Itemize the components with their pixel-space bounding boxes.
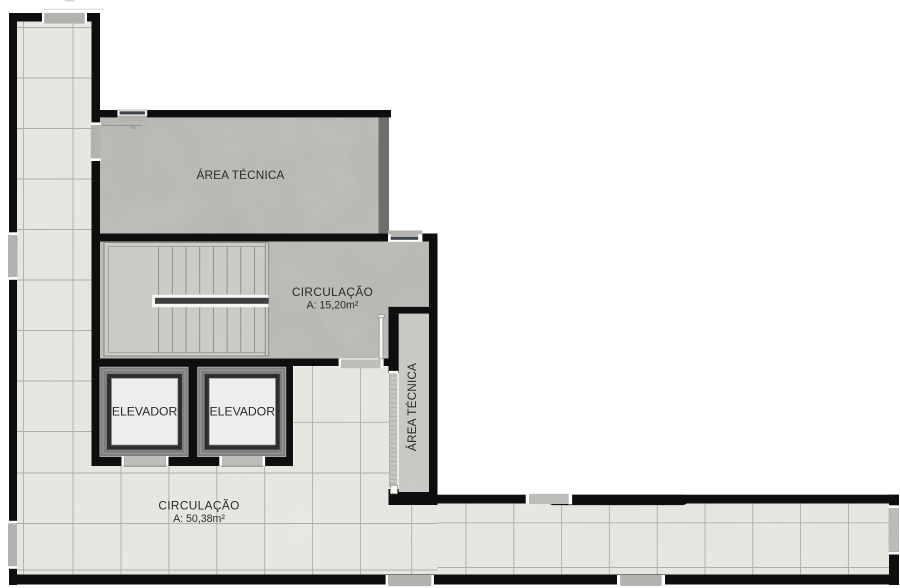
svg-text:A: 15,20m²: A: 15,20m² bbox=[307, 300, 359, 312]
svg-text:ÁREA TÉCNICA: ÁREA TÉCNICA bbox=[196, 168, 284, 182]
svg-text:ELEVADOR: ELEVADOR bbox=[210, 405, 276, 419]
svg-text:A: 50,38m²: A: 50,38m² bbox=[173, 513, 225, 525]
svg-text:ÁREA TÉCNICA: ÁREA TÉCNICA bbox=[405, 363, 419, 451]
svg-text:CIRCULAÇÃO: CIRCULAÇÃO bbox=[158, 499, 239, 513]
svg-text:CIRCULAÇÃO: CIRCULAÇÃO bbox=[292, 285, 373, 299]
svg-text:ELEVADOR: ELEVADOR bbox=[112, 405, 178, 419]
